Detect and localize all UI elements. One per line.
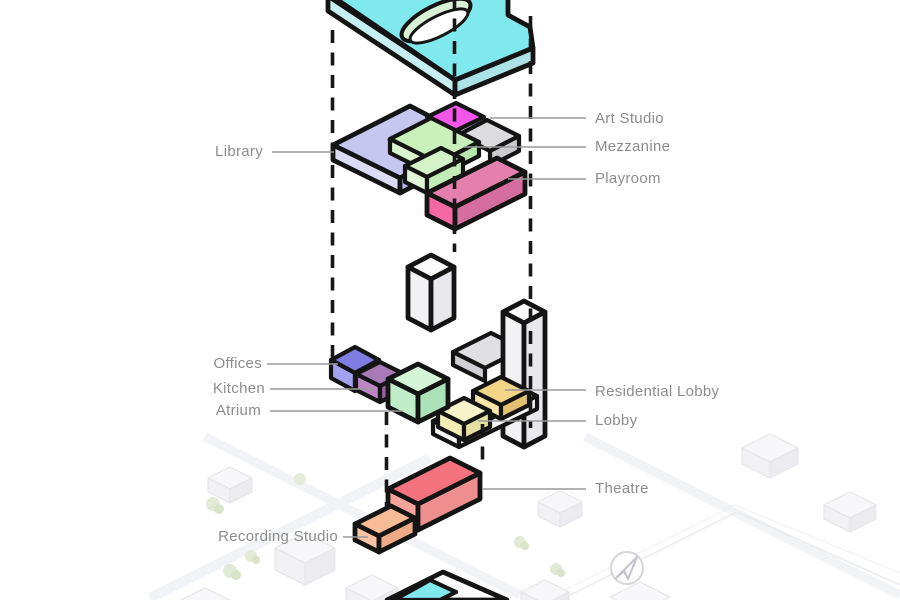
- label-residential-lobby: Residential Lobby: [595, 383, 719, 401]
- label-offices: Offices: [213, 355, 262, 373]
- mid-level-floor: [331, 255, 545, 447]
- roof-plate: [326, 0, 533, 95]
- label-mezzanine: Mezzanine: [595, 138, 670, 156]
- label-lobby: Lobby: [595, 412, 637, 430]
- lower-level: [355, 458, 480, 552]
- label-recording-studio: Recording Studio: [218, 528, 338, 546]
- map-buildings: [181, 434, 876, 600]
- stair-tower-right: [524, 312, 545, 447]
- label-atrium: Atrium: [216, 402, 261, 420]
- diagram-canvas: [0, 0, 900, 600]
- label-art-studio: Art Studio: [595, 110, 664, 128]
- city-map-background: [150, 434, 900, 600]
- core-tower-right: [431, 267, 454, 330]
- exploded-axonometric-diagram: Library Art Studio Mezzanine Playroom Of…: [0, 0, 900, 600]
- label-kitchen: Kitchen: [213, 380, 265, 398]
- label-playroom: Playroom: [595, 170, 661, 188]
- label-library: Library: [215, 143, 263, 161]
- level-2-floor: [333, 103, 525, 229]
- label-theatre: Theatre: [595, 480, 649, 498]
- compass-icon: [611, 552, 643, 584]
- map-street: [205, 437, 520, 595]
- core-tower-left: [408, 267, 431, 330]
